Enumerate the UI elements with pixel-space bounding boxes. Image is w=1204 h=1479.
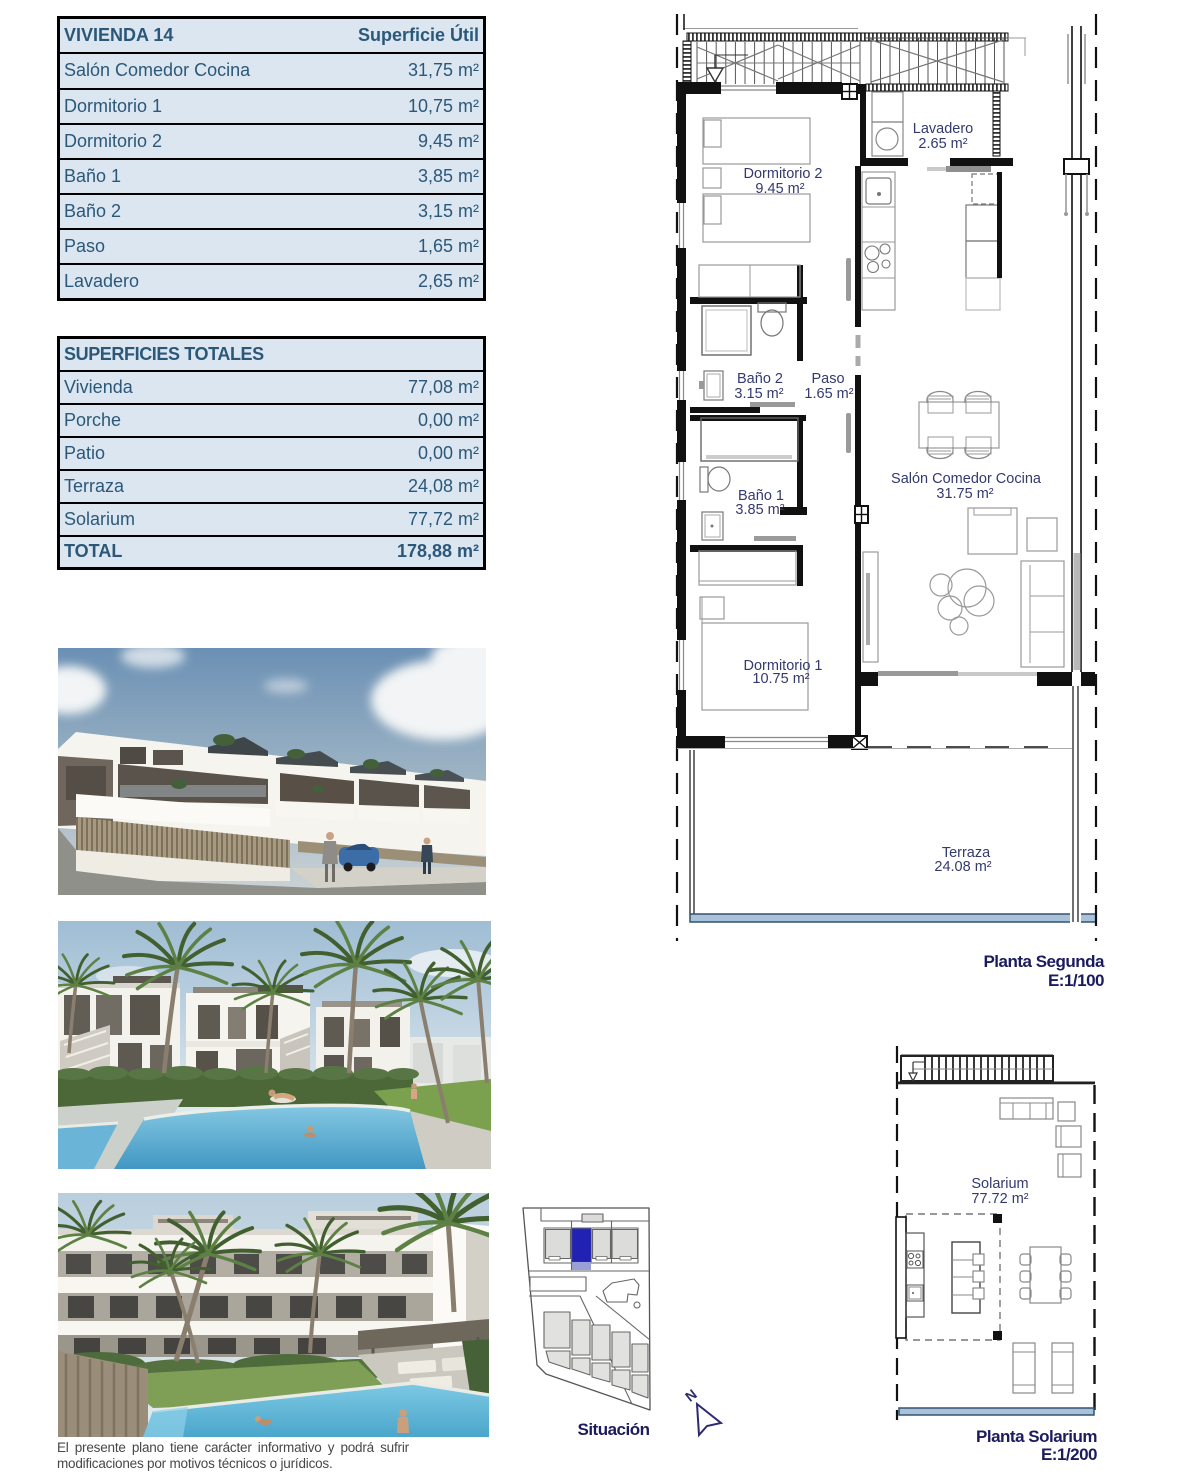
svg-text:31.75 m²: 31.75 m²: [936, 486, 993, 502]
svg-text:Lavadero: Lavadero: [913, 121, 973, 137]
svg-text:Dormitorio 2: Dormitorio 2: [744, 166, 823, 182]
svg-text:9.45 m²: 9.45 m²: [755, 181, 804, 197]
svg-text:3.85 m²: 3.85 m²: [735, 502, 784, 518]
svg-text:1.65 m²: 1.65 m²: [804, 386, 853, 402]
svg-text:Salón Comedor Cocina: Salón Comedor Cocina: [891, 471, 1042, 487]
svg-text:77.72 m²: 77.72 m²: [971, 1191, 1028, 1207]
svg-text:3.15 m²: 3.15 m²: [734, 386, 783, 402]
svg-text:24.08 m²: 24.08 m²: [934, 859, 991, 875]
svg-text:N: N: [682, 1386, 700, 1405]
svg-text:2.65 m²: 2.65 m²: [918, 136, 967, 152]
svg-text:Paso: Paso: [811, 371, 844, 387]
svg-text:Baño 2: Baño 2: [737, 371, 783, 387]
svg-text:10.75 m²: 10.75 m²: [752, 671, 809, 687]
svg-text:Solarium: Solarium: [971, 1176, 1028, 1192]
